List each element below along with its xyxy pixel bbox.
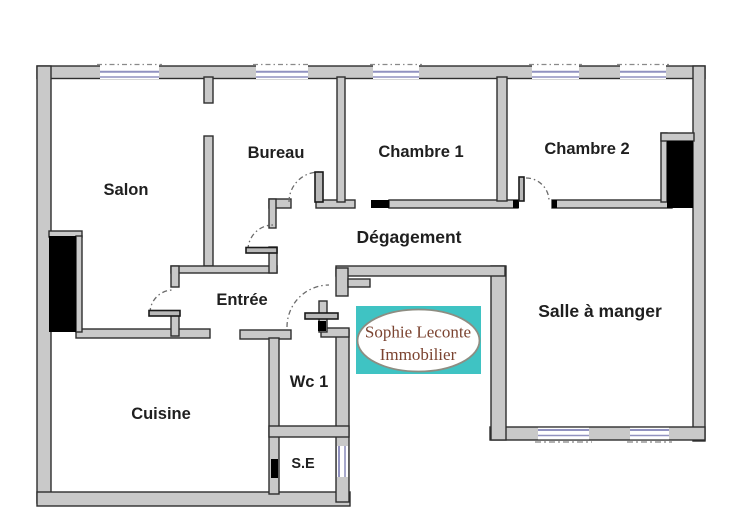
svg-text:Immobilier: Immobilier [380,345,457,364]
svg-text:Salle à manger: Salle à manger [538,301,662,321]
svg-text:Entrée: Entrée [216,291,267,309]
svg-text:S.E: S.E [291,456,315,472]
svg-text:Bureau: Bureau [248,144,305,162]
svg-text:Salon: Salon [104,181,149,199]
svg-text:Sophie Leconte: Sophie Leconte [365,323,471,342]
svg-text:Wc 1: Wc 1 [290,373,329,391]
svg-text:Cuisine: Cuisine [131,405,191,423]
svg-text:Chambre 1: Chambre 1 [378,143,463,161]
svg-text:Chambre 2: Chambre 2 [544,140,629,158]
svg-text:Dégagement: Dégagement [356,227,461,247]
